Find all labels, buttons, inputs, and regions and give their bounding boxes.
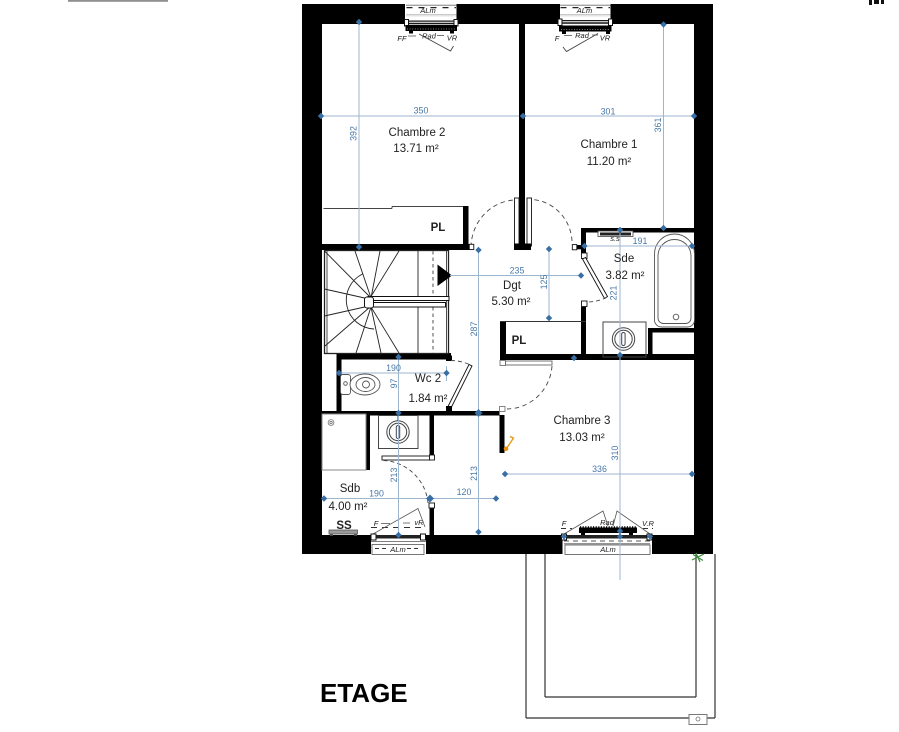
svg-text:Chambre 3: Chambre 3 <box>554 415 611 427</box>
svg-text:213: 213 <box>469 466 479 481</box>
svg-text:ALm: ALm <box>599 545 615 554</box>
svg-text:11.20 m²: 11.20 m² <box>587 156 632 168</box>
svg-text:350: 350 <box>414 106 429 116</box>
svg-text:3.82 m²: 3.82 m² <box>606 270 645 282</box>
svg-text:vR: vR <box>414 518 424 527</box>
svg-text:190: 190 <box>369 489 384 499</box>
svg-text:F: F <box>374 519 379 528</box>
svg-text:191: 191 <box>633 236 648 246</box>
svg-text:125: 125 <box>539 275 549 290</box>
svg-text:5.30 m²: 5.30 m² <box>492 296 531 308</box>
svg-text:Sde: Sde <box>614 253 634 265</box>
svg-text:190: 190 <box>386 363 401 373</box>
svg-text:301: 301 <box>601 107 616 117</box>
svg-text:F: F <box>555 34 560 43</box>
svg-text:ETAGE: ETAGE <box>320 678 408 708</box>
svg-text:VR: VR <box>447 34 458 43</box>
svg-text:PL: PL <box>431 222 446 234</box>
svg-text:1.84 m²: 1.84 m² <box>409 393 448 405</box>
svg-text:F: F <box>562 519 567 528</box>
svg-text:PL: PL <box>512 335 527 347</box>
svg-text:120: 120 <box>457 487 472 497</box>
svg-text:287: 287 <box>469 322 479 337</box>
svg-text:13.71 m²: 13.71 m² <box>393 143 439 155</box>
svg-text:FF: FF <box>397 34 407 43</box>
svg-text:97: 97 <box>389 379 399 389</box>
svg-text:392: 392 <box>349 126 359 141</box>
svg-text:213: 213 <box>389 468 399 483</box>
svg-text:4.00 m²: 4.00 m² <box>329 501 368 513</box>
svg-text:Wc 2: Wc 2 <box>415 373 441 385</box>
svg-text:VR: VR <box>600 34 611 43</box>
svg-text:Rad: Rad <box>575 31 590 40</box>
svg-text:Dgt: Dgt <box>503 280 522 292</box>
svg-text:336: 336 <box>592 464 607 474</box>
svg-text:13.03 m²: 13.03 m² <box>559 432 605 444</box>
svg-text:SS: SS <box>336 520 352 532</box>
svg-text:235: 235 <box>510 266 525 276</box>
svg-text:ALm: ALm <box>576 6 592 15</box>
svg-text:ALm: ALm <box>389 545 405 554</box>
svg-text:ALm: ALm <box>419 6 435 15</box>
svg-text:Rad: Rad <box>600 518 615 527</box>
svg-text:Sdb: Sdb <box>340 483 360 495</box>
svg-text:Chambre 2: Chambre 2 <box>389 127 446 139</box>
svg-text:Chambre 1: Chambre 1 <box>581 139 638 151</box>
svg-text:221: 221 <box>609 286 619 301</box>
svg-text:310: 310 <box>610 446 620 461</box>
svg-text:V.R: V.R <box>642 519 655 528</box>
svg-text:361: 361 <box>653 118 663 133</box>
svg-text:s.s: s.s <box>610 234 620 243</box>
